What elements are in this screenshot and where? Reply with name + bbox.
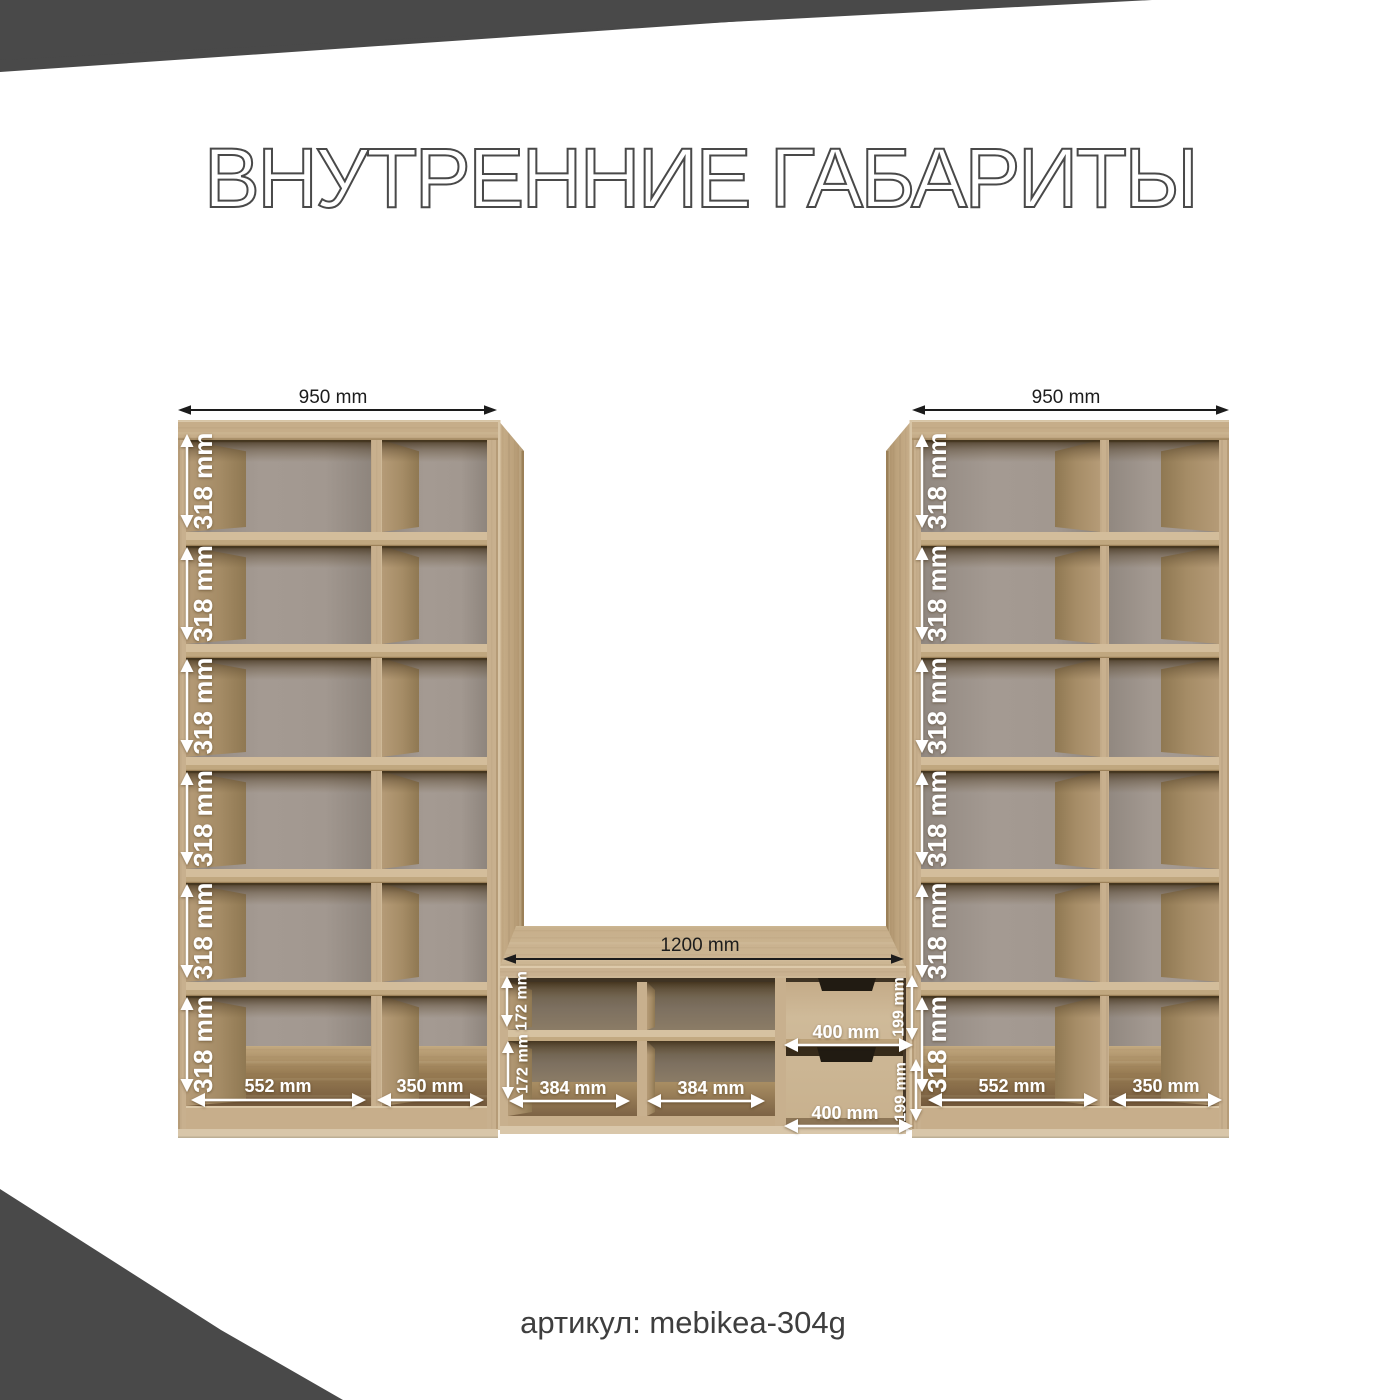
svg-text:552 mm: 552 mm [978, 1076, 1045, 1096]
svg-text:318 mm: 318 mm [922, 883, 952, 980]
svg-text:950 mm: 950 mm [1032, 387, 1101, 408]
svg-text:артикул: mebikea-304g: артикул: mebikea-304g [520, 1305, 846, 1340]
svg-text:172 mm: 172 mm [514, 971, 531, 1031]
svg-text:318 mm: 318 mm [922, 996, 952, 1093]
svg-text:1200 mm: 1200 mm [660, 935, 739, 956]
svg-text:318 mm: 318 mm [188, 996, 218, 1093]
svg-text:318 mm: 318 mm [922, 433, 952, 530]
svg-text:350 mm: 350 mm [1132, 1076, 1199, 1096]
svg-text:199 mm: 199 mm [893, 1062, 910, 1122]
svg-text:350 mm: 350 mm [396, 1076, 463, 1096]
svg-text:318 mm: 318 mm [188, 545, 218, 642]
svg-text:384 mm: 384 mm [539, 1078, 606, 1098]
svg-text:384 mm: 384 mm [677, 1078, 744, 1098]
svg-text:318 mm: 318 mm [922, 545, 952, 642]
svg-text:950 mm: 950 mm [299, 387, 368, 408]
svg-text:318 mm: 318 mm [188, 883, 218, 980]
svg-text:552 mm: 552 mm [244, 1076, 311, 1096]
svg-text:400 mm: 400 mm [812, 1022, 879, 1042]
svg-text:199 mm: 199 mm [891, 977, 908, 1037]
svg-text:318 mm: 318 mm [188, 658, 218, 755]
svg-text:318 mm: 318 mm [922, 658, 952, 755]
svg-text:318 mm: 318 mm [188, 770, 218, 867]
svg-text:ВНУТРЕННИЕ ГАБАРИТЫ: ВНУТРЕННИЕ ГАБАРИТЫ [204, 131, 1196, 225]
svg-text:172 mm: 172 mm [515, 1034, 532, 1094]
svg-text:400 mm: 400 mm [811, 1103, 878, 1123]
svg-text:318 mm: 318 mm [922, 770, 952, 867]
svg-text:318 mm: 318 mm [188, 433, 218, 530]
